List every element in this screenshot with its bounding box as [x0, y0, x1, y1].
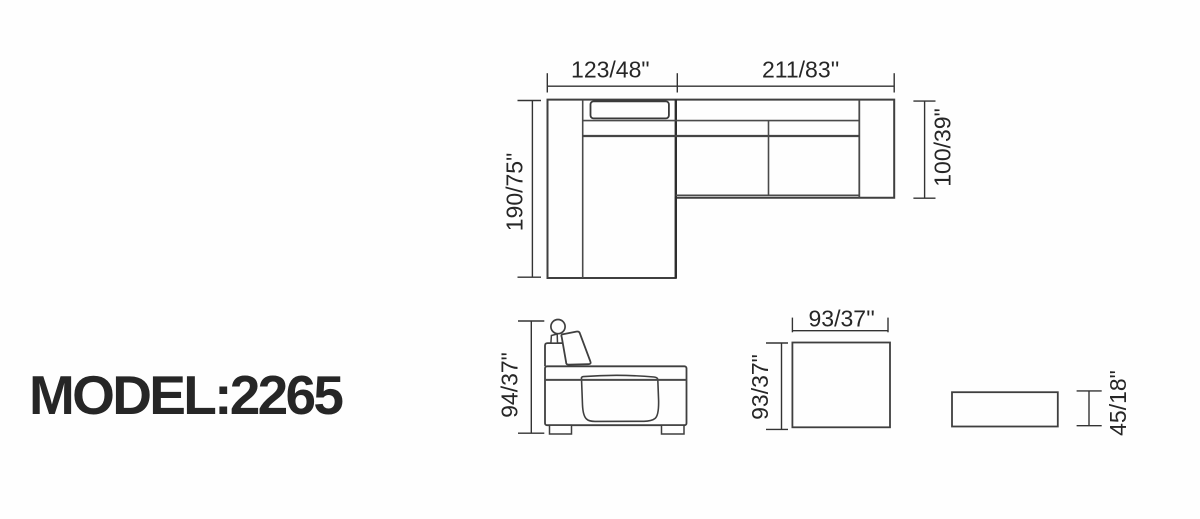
svg-text:93/37": 93/37" — [747, 354, 773, 420]
svg-text:190/75": 190/75" — [502, 153, 528, 232]
svg-text:45/18": 45/18" — [1105, 370, 1131, 436]
svg-text:123/48": 123/48" — [571, 57, 650, 83]
svg-text:211/83'': 211/83'' — [762, 57, 839, 83]
svg-text:MODEL:2265: MODEL:2265 — [29, 364, 343, 426]
svg-text:94/37": 94/37" — [497, 352, 523, 418]
svg-text:100/39": 100/39" — [930, 108, 956, 187]
svg-text:93/37'': 93/37'' — [809, 306, 875, 332]
